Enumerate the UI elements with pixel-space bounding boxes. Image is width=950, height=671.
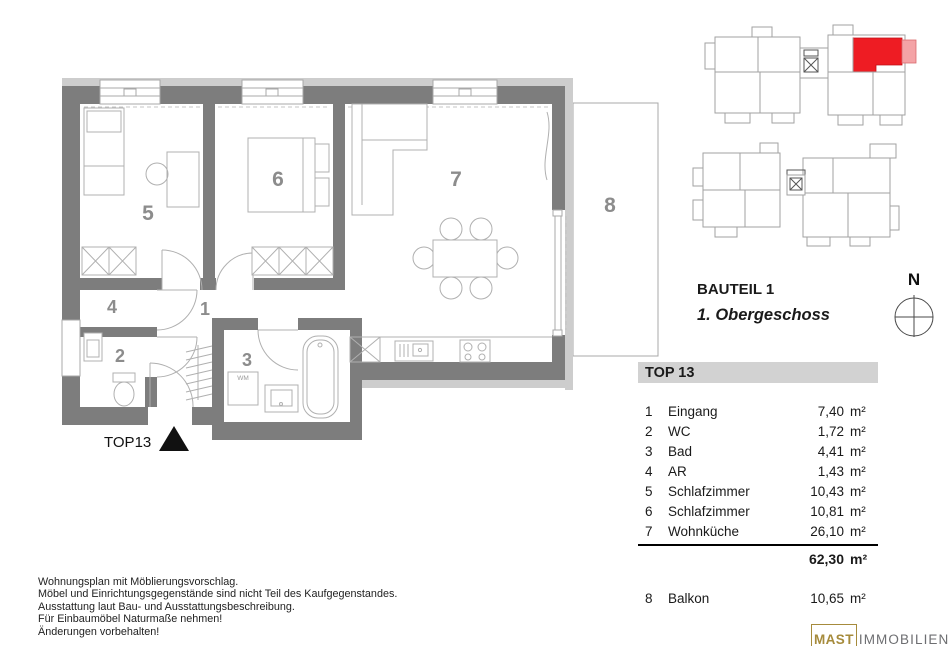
floor-title: 1. Obergeschoss [697,306,830,325]
legend-row: 5 Schlafzimmer 10,43 m² [638,481,878,501]
disclaimer-line: Möbel und Einrichtungsgegenstände sind n… [38,588,397,600]
bath-sink [265,385,298,412]
washing-machine: WM [228,372,258,405]
toilet [113,373,135,406]
legend-row: 6 Schlafzimmer 10,81 m² [638,501,878,521]
bathtub [303,336,338,418]
room-nr: 2 [638,424,668,439]
legend-row: 2 WC 1,72 m² [638,421,878,441]
highlighted-balcony [902,40,916,63]
balcony-outline [573,103,658,356]
room-nr: 1 [638,404,668,419]
legend-total-row: 62,30 m² [638,546,878,572]
door-room6 [216,253,253,290]
room-nr: 8 [638,591,668,606]
dining-table [413,218,518,299]
bed-single [84,108,124,195]
room-area: 10,65 [786,591,844,606]
door-ar [157,290,197,330]
room-number-1: 1 [200,299,210,319]
room-nr: 6 [638,504,668,519]
room-number-5: 5 [142,202,154,225]
door-bath [258,330,298,370]
wc-sink [84,333,102,361]
door-wc [157,337,197,377]
room-number-3: 3 [242,350,252,370]
unit-label: TOP13 [104,434,151,451]
room-unit: m² [844,464,878,479]
room-nr: 3 [638,444,668,459]
legend-row: 3 Bad 4,41 m² [638,441,878,461]
disclaimer: Wohnungsplan mit Möblierungsvorschlag. M… [38,576,397,638]
legend-title: TOP 13 [638,362,878,383]
total-unit: m² [844,551,878,567]
room-name: Eingang [668,404,786,419]
kitchen-counter [350,337,552,362]
room-legend: TOP 13 1 Eingang 7,40 m² 2 WC 1,72 m² 3 … [638,362,878,608]
room-area: 1,72 [786,424,844,439]
wardrobe-room5 [82,247,136,275]
room-area: 10,81 [786,504,844,519]
sofa [352,104,427,215]
room-unit: m² [844,444,878,459]
room-area: 1,43 [786,464,844,479]
legend-row: 1 Eingang 7,40 m² [638,401,878,421]
disclaimer-line: Wohnungsplan mit Möblierungsvorschlag. [38,576,397,588]
room-name: Balkon [668,591,786,606]
room-unit: m² [844,484,878,499]
entrance-arrow-icon [159,426,189,451]
balcony-door [553,210,566,336]
room-unit: m² [844,524,878,539]
building-overview [690,10,950,260]
logo-suffix: IMMOBILIEN [859,633,950,646]
disclaimer-line: Für Einbaumöbel Naturmaße nehmen! [38,613,397,625]
window-room6 [242,80,303,104]
room-nr: 7 [638,524,668,539]
compass-north-label: N [908,270,920,289]
room-name: Bad [668,444,786,459]
section-block: BAUTEIL 1 1. Obergeschoss [697,281,830,325]
room-name: AR [668,464,786,479]
room-number-6: 6 [272,168,284,191]
room-unit: m² [844,424,878,439]
legend-row-balcony: 8 Balkon 10,65 m² [638,588,878,608]
room-unit: m² [844,404,878,419]
legend-row: 7 Wohnküche 26,10 m² [638,521,878,541]
room-name: WC [668,424,786,439]
room-unit: m² [844,504,878,519]
room-name: Schlafzimmer [668,504,786,519]
room-area: 7,40 [786,404,844,419]
logo-mark: MAST [811,624,857,646]
compass: N [878,268,950,350]
disclaimer-line: Ausstattung laut Bau- und Ausstattungsbe… [38,601,397,613]
site-plan-lower [693,143,899,246]
room-unit: m² [844,591,878,606]
legend-total-divider: 62,30 m² [638,544,878,572]
room-number-2: 2 [115,346,125,366]
company-logo: MAST IMMOBILIEN [811,624,949,646]
room-name: Schlafzimmer [668,484,786,499]
desk-and-chair [146,152,199,207]
total-area: 62,30 [786,551,844,567]
site-plan-upper [705,25,916,125]
legend-rows: 1 Eingang 7,40 m² 2 WC 1,72 m² 3 Bad 4,4… [638,401,878,608]
room-number-8: 8 [604,194,616,217]
disclaimer-line: Änderungen vorbehalten! [38,626,397,638]
wardrobe-room6 [252,247,333,275]
room-nr: 4 [638,464,668,479]
window-room5 [100,80,160,104]
floor-plan: WM 1 2 3 4 5 6 7 8 TOP13 [30,55,690,470]
wm-label: WM [237,375,249,382]
floorplan-page: WM 1 2 3 4 5 6 7 8 TOP13 [0,0,950,671]
bed-double [248,138,329,212]
legend-row: 4 AR 1,43 m² [638,461,878,481]
curtain [545,112,549,180]
room-name: Wohnküche [668,524,786,539]
coat-rack [186,345,212,400]
room-nr: 5 [638,484,668,499]
room-number-7: 7 [450,168,462,191]
door-room5 [162,250,202,290]
window-room7 [433,80,497,104]
bauteil-title: BAUTEIL 1 [697,281,830,298]
room-area: 26,10 [786,524,844,539]
room-area: 4,41 [786,444,844,459]
room-area: 10,43 [786,484,844,499]
room-number-4: 4 [107,297,117,317]
